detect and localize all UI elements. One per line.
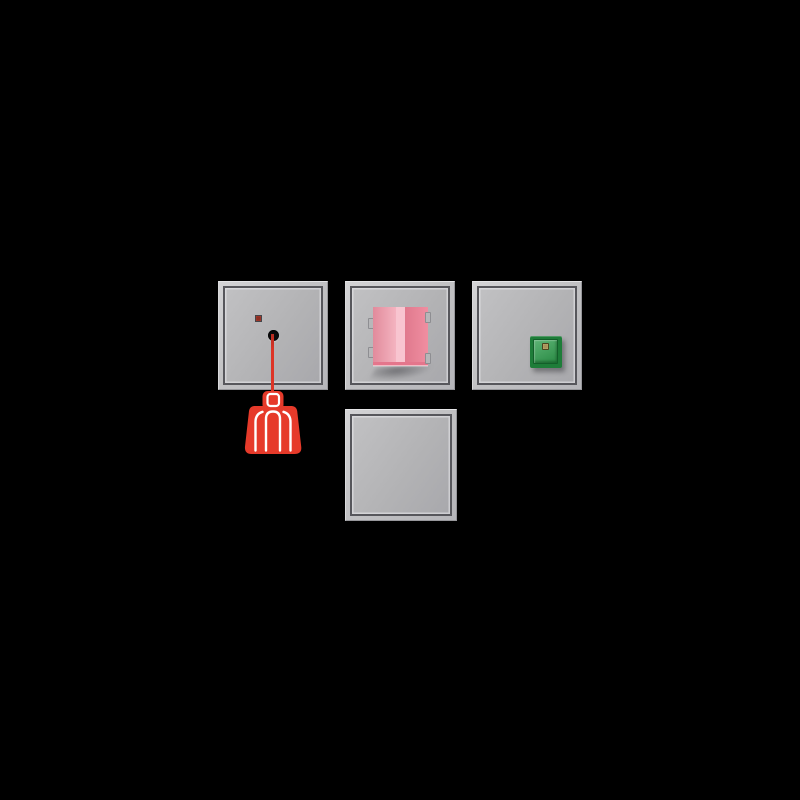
handle-body — [245, 406, 301, 454]
green-button[interactable] — [530, 336, 562, 368]
rocker-left-face — [373, 307, 396, 366]
blank-cover-panel — [345, 409, 457, 521]
fixing-clip — [425, 353, 431, 364]
pull-handle[interactable] — [241, 388, 305, 458]
rocker-body — [373, 307, 428, 366]
switch-plate — [477, 286, 577, 385]
pink-rocker[interactable] — [370, 305, 431, 369]
pink-rocker-panel — [345, 281, 455, 390]
call-indicator-led — [255, 315, 262, 322]
rocker-bottom-edge — [373, 362, 428, 366]
fixing-clip — [425, 312, 431, 323]
rocker-fold-highlight — [396, 307, 405, 366]
pull-cord[interactable] — [271, 334, 275, 392]
button-led — [542, 343, 549, 350]
blank-plate — [350, 414, 452, 516]
green-button-panel — [472, 281, 582, 390]
green-button-face — [533, 339, 558, 364]
product-photo-canvas — [0, 0, 800, 800]
